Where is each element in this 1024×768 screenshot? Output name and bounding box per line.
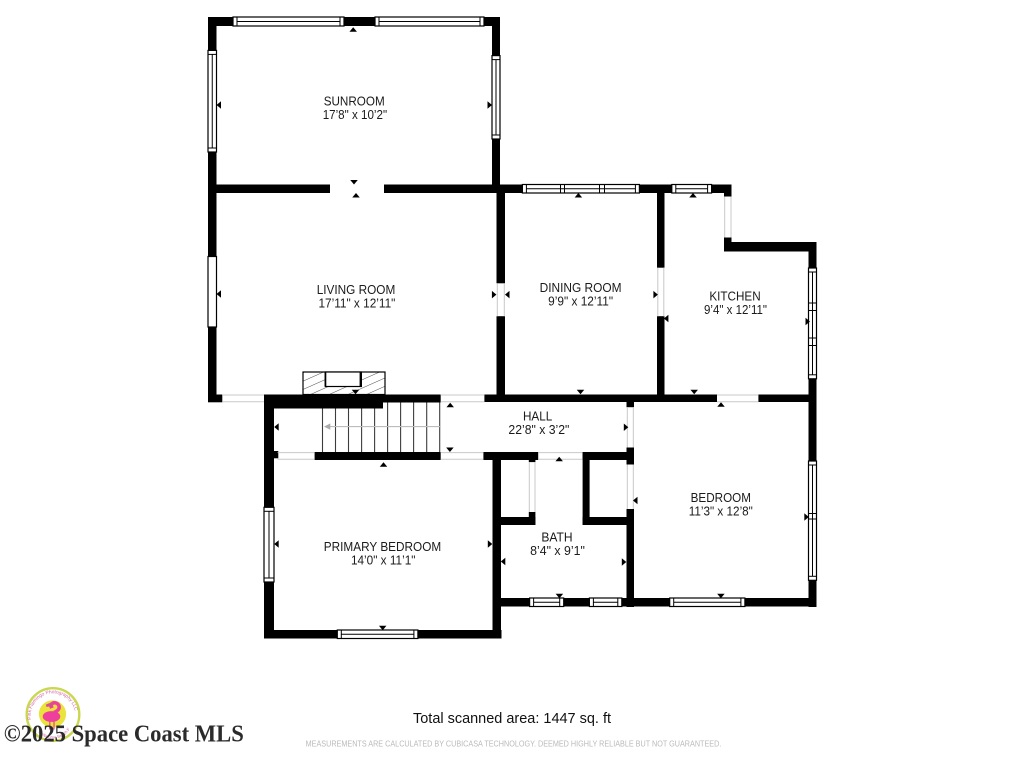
svg-text:©2025 Space Coast MLS: ©2025 Space Coast MLS: [4, 721, 244, 748]
svg-text:17’8" x 10’2": 17’8" x 10’2": [323, 107, 388, 122]
svg-text:14’0" x 11’1": 14’0" x 11’1": [351, 553, 416, 568]
svg-text:9’4" x 12’11": 9’4" x 12’11": [704, 302, 767, 317]
svg-text:8’4" x 9’1": 8’4" x 9’1": [530, 543, 585, 558]
svg-text:17’11" x 12’11": 17’11" x 12’11": [318, 295, 395, 310]
svg-text:9’9" x 12’11": 9’9" x 12’11": [548, 294, 613, 309]
svg-text:11’3" x 12’8": 11’3" x 12’8": [689, 503, 753, 518]
svg-text:22’8" x 3’2": 22’8" x 3’2": [508, 422, 569, 437]
svg-text:MEASUREMENTS ARE CALCULATED BY: MEASUREMENTS ARE CALCULATED BY CUBICASA …: [306, 738, 722, 748]
svg-text:Total scanned area: 1447 sq. f: Total scanned area: 1447 sq. ft: [413, 710, 612, 727]
